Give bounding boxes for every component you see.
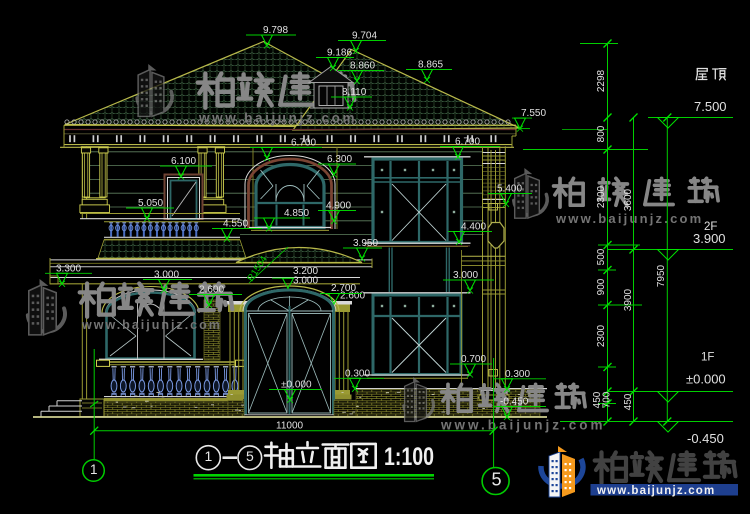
svg-text:500: 500 bbox=[596, 248, 607, 265]
svg-text:1:100: 1:100 bbox=[384, 443, 434, 471]
svg-text:www.baijunjz.com: www.baijunjz.com bbox=[198, 111, 357, 126]
svg-text:7950: 7950 bbox=[656, 264, 667, 287]
svg-text:1F: 1F bbox=[701, 352, 714, 364]
svg-text:6.700: 6.700 bbox=[291, 138, 316, 149]
svg-text:9.186: 9.186 bbox=[327, 48, 352, 59]
svg-text:5.050: 5.050 bbox=[138, 198, 163, 209]
svg-text:7.500: 7.500 bbox=[694, 99, 727, 114]
svg-text:3.000: 3.000 bbox=[293, 276, 318, 287]
svg-text:8.865: 8.865 bbox=[418, 60, 443, 71]
svg-text:3.000: 3.000 bbox=[154, 270, 179, 281]
svg-text:2300: 2300 bbox=[596, 324, 607, 347]
svg-text:±0.000: ±0.000 bbox=[686, 372, 726, 387]
svg-text:5: 5 bbox=[492, 469, 502, 489]
svg-text:1: 1 bbox=[205, 448, 213, 464]
svg-text:3900: 3900 bbox=[623, 288, 634, 311]
svg-text:2300: 2300 bbox=[596, 185, 607, 208]
svg-text:5: 5 bbox=[246, 448, 254, 464]
svg-text:2.600: 2.600 bbox=[199, 285, 224, 296]
svg-text:5.400: 5.400 bbox=[497, 184, 522, 195]
svg-text:9.704: 9.704 bbox=[352, 31, 377, 42]
svg-text:1: 1 bbox=[90, 462, 98, 477]
svg-text:-0.450: -0.450 bbox=[687, 431, 724, 446]
svg-text:-0.450: -0.450 bbox=[500, 397, 529, 408]
svg-text:6.300: 6.300 bbox=[327, 154, 352, 165]
svg-text:2298: 2298 bbox=[596, 69, 607, 92]
svg-text:3600: 3600 bbox=[623, 188, 634, 211]
svg-text:7.550: 7.550 bbox=[521, 108, 546, 119]
svg-text:0.300: 0.300 bbox=[505, 369, 530, 380]
svg-text:www.baijunjz.com: www.baijunjz.com bbox=[81, 318, 222, 332]
svg-text:6.700: 6.700 bbox=[455, 137, 480, 148]
svg-text:700: 700 bbox=[602, 391, 613, 408]
svg-text:±0.000: ±0.000 bbox=[281, 380, 312, 391]
svg-text:8.110: 8.110 bbox=[342, 87, 367, 98]
svg-text:4.900: 4.900 bbox=[326, 201, 351, 212]
svg-text:3.900: 3.900 bbox=[693, 231, 726, 246]
svg-text:800: 800 bbox=[596, 125, 607, 142]
svg-text:450: 450 bbox=[623, 393, 634, 410]
svg-text:6.100: 6.100 bbox=[171, 156, 196, 167]
svg-text:9.798: 9.798 bbox=[263, 25, 288, 36]
svg-text:4.400: 4.400 bbox=[461, 222, 486, 233]
svg-text:3.000: 3.000 bbox=[453, 270, 478, 281]
svg-text:3.300: 3.300 bbox=[56, 263, 81, 274]
svg-text:4.550: 4.550 bbox=[223, 219, 248, 230]
svg-text:www.baijunjz.com: www.baijunjz.com bbox=[555, 211, 703, 226]
svg-text:8.860: 8.860 bbox=[350, 61, 375, 72]
svg-text:2.600: 2.600 bbox=[340, 290, 365, 301]
svg-text:0.300: 0.300 bbox=[345, 368, 370, 379]
svg-text:11000: 11000 bbox=[276, 420, 304, 431]
svg-text:3.950: 3.950 bbox=[353, 238, 378, 249]
svg-text:www.baijunjz.com: www.baijunjz.com bbox=[596, 485, 715, 497]
svg-text:4.850: 4.850 bbox=[284, 208, 309, 219]
svg-text:900: 900 bbox=[596, 278, 607, 295]
svg-text:0.700: 0.700 bbox=[461, 354, 486, 365]
